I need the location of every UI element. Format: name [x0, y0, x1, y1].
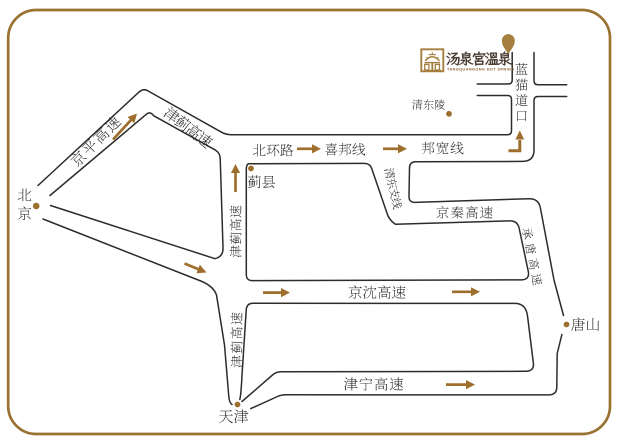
- svg-text:TANGQUANGONG HOT SPRING: TANGQUANGONG HOT SPRING: [447, 67, 515, 71]
